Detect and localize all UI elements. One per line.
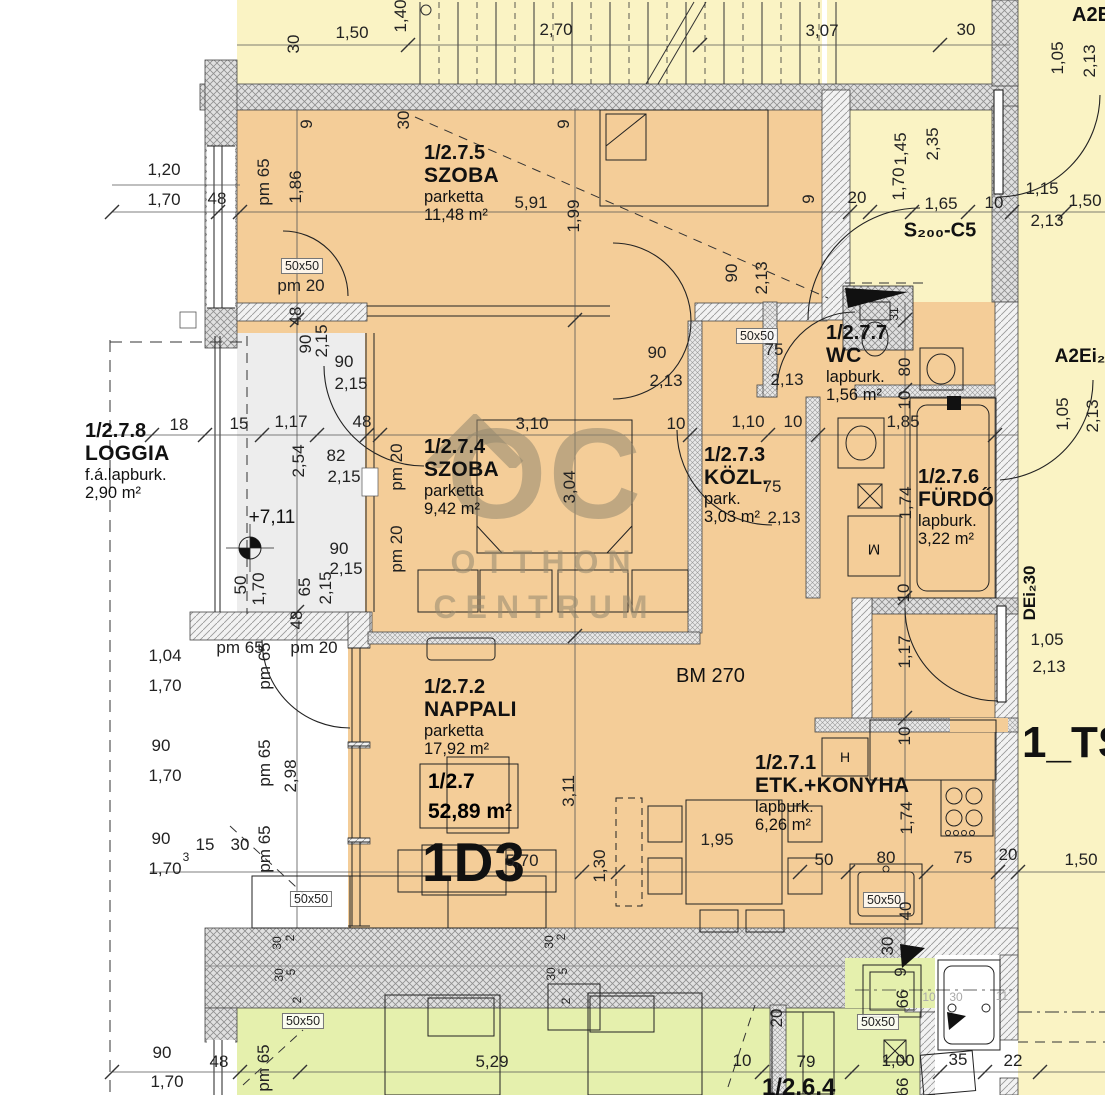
dim-label: pm 20 [277, 276, 324, 296]
dim-label: 82 [327, 446, 346, 466]
dim-label: 1,10 [731, 412, 764, 432]
dim-label: 2,13 [752, 261, 772, 294]
dim-label: 9 [554, 119, 574, 128]
dim-label: 3,04 [560, 470, 580, 503]
dim-label: 1,65 [924, 194, 957, 214]
room-floor: f.á.lapburk. [85, 466, 170, 484]
dim-label: 1,30 [590, 849, 610, 882]
room-label-etk-konyha: 1/2.7.1 ETK.+KONYHA lapburk. 6,26 m² [755, 752, 909, 835]
dim-label: 48 [210, 1052, 229, 1072]
room-id: 1/2.7.8 [85, 420, 170, 442]
room-id: 1/2.7.3 [704, 444, 769, 466]
shaft-tag: 50x50 [281, 258, 323, 274]
dim-label: 2 [283, 935, 297, 942]
dim-label: 1,50 [335, 23, 368, 43]
dim-label: 1,99 [564, 199, 584, 232]
dim-label: 90 [648, 343, 667, 363]
dim-label: 9 [799, 194, 819, 203]
dim-label: 1,95 [700, 830, 733, 850]
dim-label: pm 65 [255, 739, 275, 786]
dim-label: 30 [231, 835, 250, 855]
dim-label: 48 [287, 611, 307, 630]
dim-label: 1,05 [1053, 397, 1073, 430]
room-area: 3,03 m² [704, 508, 769, 526]
dim-label: 10 [895, 727, 915, 746]
dim-label: 1,86 [286, 170, 306, 203]
dim-label: 65 [295, 578, 315, 597]
dim-label: 1,70 [148, 766, 181, 786]
hood-label: H [840, 749, 850, 765]
dim-label: 2,15 [327, 467, 360, 487]
room-label-furdo: 1/2.7.6 FÜRDŐ lapburk. 3,22 m² [918, 466, 994, 549]
dim-label: 5 [556, 968, 570, 975]
dim-label: 20 [848, 188, 867, 208]
room-label-loggia: 1/2.7.8 LOGGIA f.á.lapburk. 2,90 m² [85, 420, 170, 503]
dim-label: 66 [893, 1078, 913, 1095]
room-floor: parketta [424, 722, 517, 740]
dim-label: pm 20 [290, 638, 337, 658]
room-floor: lapburk. [755, 798, 909, 816]
dim-label: 40 [896, 902, 916, 921]
dim-label: 9 [891, 967, 911, 976]
dim-label: 9 [297, 119, 317, 128]
room-area: 9,42 m² [424, 500, 499, 518]
dim-label: 1,20 [147, 160, 180, 180]
dim-label: 1,17 [895, 635, 915, 668]
dim-label: 3,11 [559, 775, 579, 807]
dim-label: 30 [284, 35, 304, 54]
room-id: 1/2.7.6 [918, 466, 994, 488]
dim-label: 2,70 [539, 20, 572, 40]
dim-label: 2,35 [923, 127, 943, 160]
shaft-tag: 50x50 [290, 891, 332, 907]
room-area: 17,92 m² [424, 740, 517, 758]
dim-label: 10 [922, 990, 935, 1004]
dim-label: 22 [1004, 1051, 1023, 1071]
room-floor: lapburk. [918, 512, 994, 530]
dim-label: 1,05 [1030, 630, 1063, 650]
room-area: 1,56 m² [826, 386, 887, 404]
dim-label: 20 [767, 1009, 787, 1028]
room-id: 1/2.7.5 [424, 142, 499, 164]
dim-label: pm 65 [255, 642, 275, 689]
entry-door-code-label: DEi₂30 [1020, 566, 1040, 621]
room-label-nappali: 1/2.7.2 NAPPALI parketta 17,92 m² [424, 676, 517, 759]
room-id: 1/2.7.4 [424, 436, 499, 458]
room-name: SZOBA [424, 164, 499, 188]
stair-core-label: S₂₀₀-C5 [904, 220, 976, 243]
dim-label: 80 [895, 358, 915, 377]
dim-label: 1,45 [891, 132, 911, 165]
dim-label: 5,91 [514, 193, 547, 213]
dim-label: 80 [877, 848, 896, 868]
washing-machine-label: M [868, 541, 881, 558]
unit-area: 52,89 m² [428, 800, 512, 824]
shaft-tag: 50x50 [282, 1013, 324, 1029]
unit-below-label: 1/2.6.4 [762, 1074, 835, 1095]
dim-label: 30 [878, 937, 898, 956]
shaft-tag: 50x50 [857, 1014, 899, 1030]
dim-label: pm 65 [254, 1044, 274, 1091]
dim-label: 48 [353, 412, 372, 432]
dim-label: 1,50 [1064, 850, 1097, 870]
dim-label: 75 [954, 848, 973, 868]
dim-label: 1,50 [1068, 191, 1101, 211]
dim-label: 2,13 [770, 370, 803, 390]
room-id: 1/2.7.1 [755, 752, 909, 774]
neighbor-unit-right-label: A2Ei₂ [1055, 346, 1105, 368]
dim-label: 2,13 [649, 371, 682, 391]
dim-label: 90 [335, 352, 354, 372]
room-floor: parketta [424, 188, 499, 206]
room-name: NAPPALI [424, 698, 517, 722]
dim-label: 2 [554, 934, 568, 941]
dim-label: 50 [231, 576, 251, 595]
dim-label: 2,98 [281, 759, 301, 792]
dim-label: pm 65 [255, 825, 275, 872]
dim-label: 5,70 [505, 851, 538, 871]
room-label-kozl: 1/2.7.3 KÖZL. park. 3,03 m² [704, 444, 769, 527]
dim-label: 2,13 [767, 508, 800, 528]
level-marker-label: +7,11 [249, 507, 296, 529]
room-area: 2,90 m² [85, 484, 170, 502]
dim-label: 1,70 [889, 167, 909, 200]
room-id: 1/2.7.7 [826, 322, 887, 344]
dim-label: 90 [152, 736, 171, 756]
dim-label: 2 [290, 997, 304, 1004]
dim-label: 2,13 [1080, 44, 1100, 77]
dim-label: 30 [949, 990, 962, 1004]
dim-label: 1,74 [896, 486, 916, 519]
dim-label: 10 [784, 412, 803, 432]
dim-label: 1,85 [886, 412, 919, 432]
room-floor: parketta [424, 482, 499, 500]
unit-code: 1/2.7 [428, 770, 512, 794]
room-label-wc: 1/2.7.7 WC lapburk. 1,56 m² [826, 322, 887, 405]
room-name: SZOBA [424, 458, 499, 482]
room-floor: lapburk. [826, 368, 887, 386]
dim-label: 18 [170, 415, 189, 435]
dim-label: 10 [733, 1051, 752, 1071]
room-label-szoba-5: 1/2.7.5 SZOBA parketta 11,48 m² [424, 142, 499, 225]
dim-label: 50 [815, 850, 834, 870]
dim-label: 1,70 [150, 1072, 183, 1092]
dim-label: pm 20 [387, 525, 407, 572]
dim-label: 79 [797, 1052, 816, 1072]
dim-label: 90 [330, 539, 349, 559]
neighbor-unit-top-label: A2E [1072, 4, 1105, 27]
dim-label: 3,07 [805, 21, 838, 41]
dim-label: 2 [559, 998, 573, 1005]
room-name: KÖZL. [704, 466, 769, 490]
sheet-label: 1_TS [1022, 718, 1105, 768]
dim-label: pm 65 [254, 158, 274, 205]
dim-label: 90 [153, 1043, 172, 1063]
dim-label: 20 [999, 845, 1018, 865]
dim-label: 10 [894, 584, 914, 603]
dim-label: 2,15 [316, 571, 336, 604]
room-name: LOGGIA [85, 442, 170, 466]
room-label-szoba-4: 1/2.7.4 SZOBA parketta 9,42 m² [424, 436, 499, 519]
room-name: FÜRDŐ [918, 488, 994, 512]
dim-label: 3,10 [515, 414, 548, 434]
room-floor: park. [704, 490, 769, 508]
dim-label: 2,13 [1030, 211, 1063, 231]
dim-label: 2,13 [1083, 399, 1103, 432]
dim-label: 1,70 [148, 676, 181, 696]
room-id: 1/2.7.2 [424, 676, 517, 698]
dim-label: 48 [286, 307, 306, 326]
dim-label: 30 [270, 936, 284, 949]
dim-label: 5,29 [475, 1052, 508, 1072]
dim-label: 1,70 [147, 190, 180, 210]
dim-label: 11 [996, 989, 1008, 1003]
dim-label: 15 [196, 835, 215, 855]
dim-label: 2,15 [334, 374, 367, 394]
dim-label: 5 [284, 969, 298, 976]
dim-label: 3 [183, 850, 190, 864]
dim-label: 1,00 [881, 1051, 914, 1071]
dim-label: 1,15 [1025, 179, 1058, 199]
room-name: WC [826, 344, 887, 368]
dim-label: 75 [765, 340, 784, 360]
dim-label: 10 [667, 414, 686, 434]
dim-label: 2,15 [312, 324, 332, 357]
dim-label: 1,04 [148, 646, 181, 666]
dim-label: 90 [722, 264, 742, 283]
room-name: ETK.+KONYHA [755, 774, 909, 798]
dim-label: 1,17 [274, 412, 307, 432]
room-area: 3,22 m² [918, 530, 994, 548]
dim-label: 90 [152, 829, 171, 849]
dim-label: 15 [230, 414, 249, 434]
dim-label: 2,13 [1032, 657, 1065, 677]
dim-label: pm 20 [387, 443, 407, 490]
dim-label: 35 [949, 1050, 968, 1070]
dim-label: 2,54 [289, 444, 309, 477]
dim-label: 10 [895, 391, 915, 410]
unit-summary: 1/2.7 52,89 m² [428, 770, 512, 824]
dim-label: 1,70 [148, 859, 181, 879]
dim-label: 30 [394, 111, 414, 130]
dim-label: 48 [208, 189, 227, 209]
floor-plan: OC OTTHON CENTRUM 1/2.7.5 SZOBA parketta… [0, 0, 1105, 1095]
room-area: 6,26 m² [755, 816, 909, 834]
room-area: 11,48 m² [424, 206, 499, 224]
dim-label: 10 [985, 193, 1004, 213]
bm-label: BM 270 [676, 665, 745, 688]
dim-label: 1,05 [1048, 41, 1068, 74]
dim-label: 30 [957, 20, 976, 40]
dim-label: 66 [893, 990, 913, 1009]
dim-label: 1,70 [249, 572, 269, 605]
dim-label: 1,74 [897, 801, 917, 834]
dim-label: 31 [887, 307, 901, 320]
dim-label: 1,40 [391, 0, 411, 33]
dim-label: 75 [763, 477, 782, 497]
